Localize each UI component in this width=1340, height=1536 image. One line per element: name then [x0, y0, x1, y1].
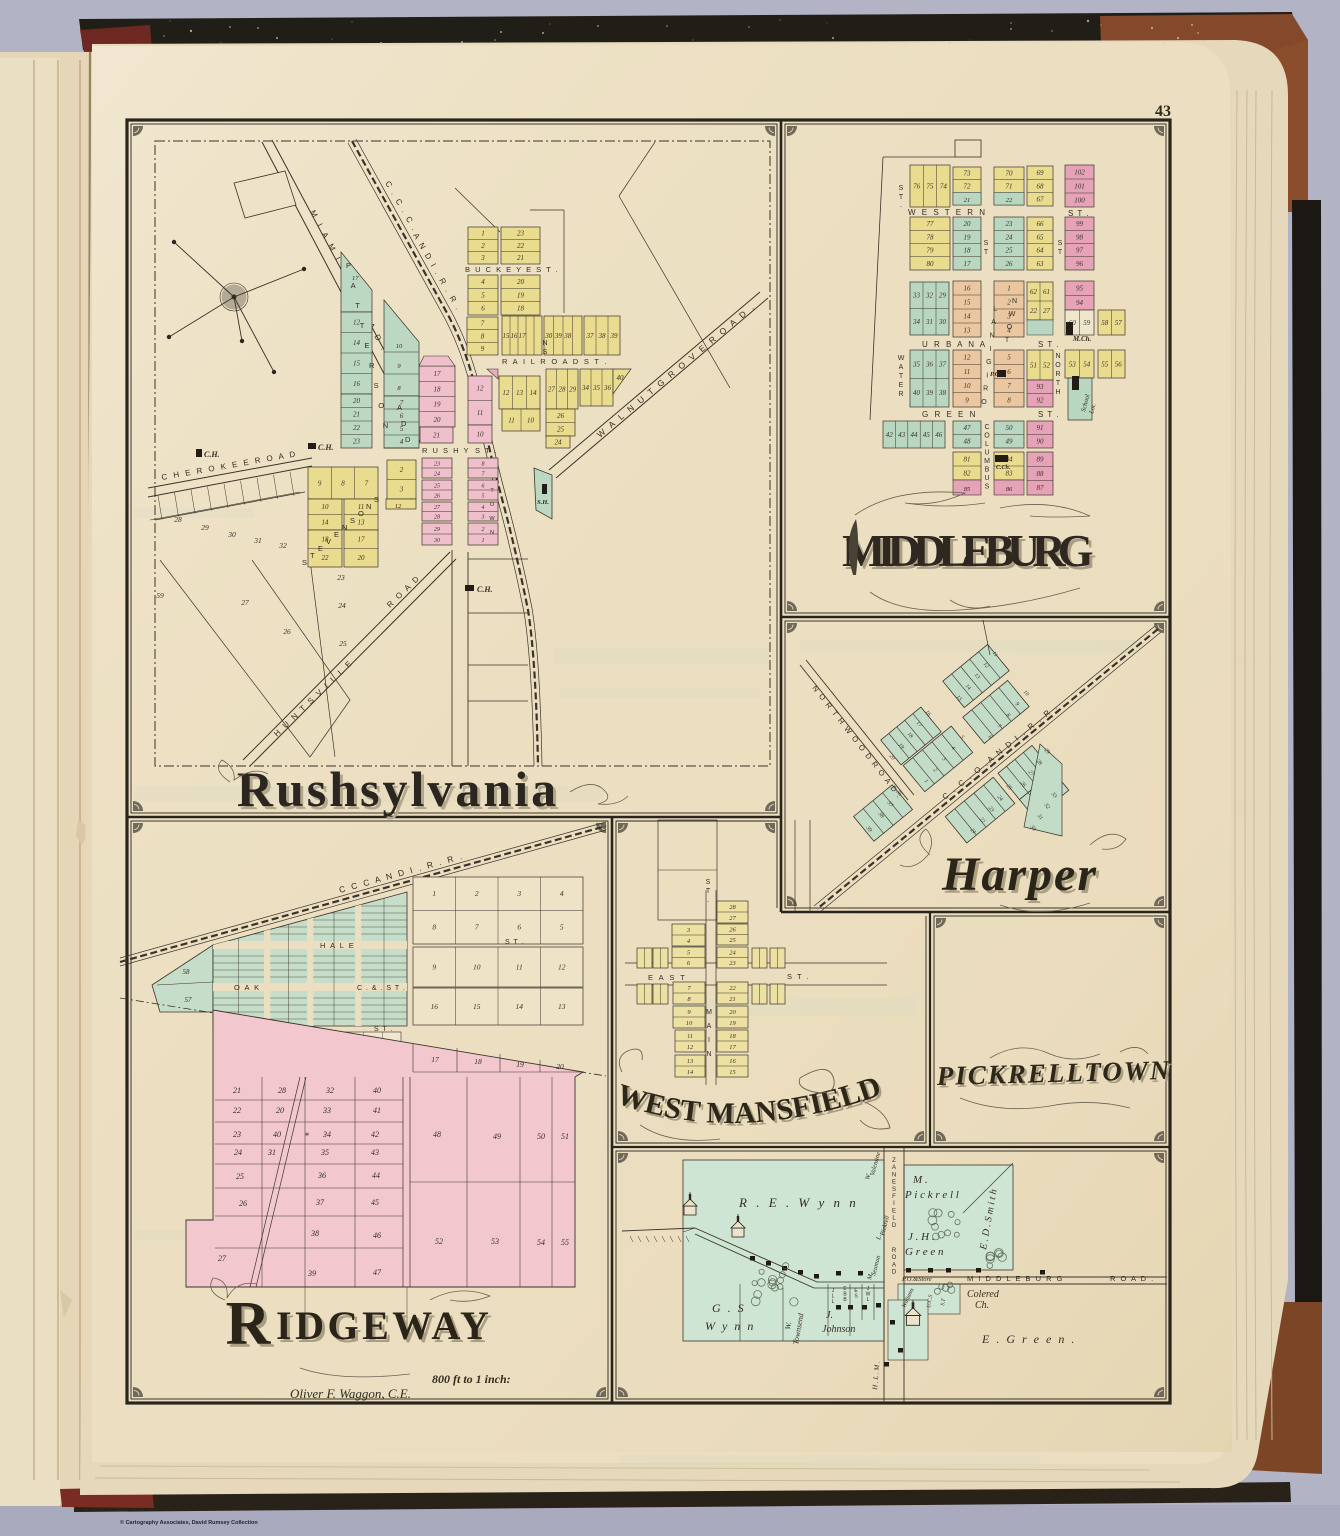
svg-text:82: 82 [964, 469, 972, 477]
svg-text:95: 95 [1076, 285, 1084, 293]
svg-text:4: 4 [560, 889, 564, 898]
svg-text:13: 13 [687, 1058, 694, 1065]
svg-text:26: 26 [557, 412, 565, 420]
svg-text:O: O [378, 401, 384, 410]
svg-text:W: W [489, 516, 495, 522]
svg-text:6: 6 [517, 923, 521, 932]
svg-text:O A K: O A K [234, 983, 261, 992]
svg-text:12: 12 [477, 385, 485, 393]
svg-text:19: 19 [516, 1060, 524, 1069]
svg-text:.: . [707, 896, 709, 904]
svg-text:89: 89 [1037, 456, 1045, 464]
svg-text:35: 35 [912, 361, 921, 369]
svg-text:T: T [1058, 249, 1063, 256]
svg-text:48: 48 [964, 438, 972, 446]
svg-text:12: 12 [964, 354, 972, 362]
svg-text:E: E [899, 382, 904, 389]
svg-text:19: 19 [434, 401, 442, 409]
svg-text:R: R [1055, 371, 1060, 378]
svg-text:11: 11 [687, 1033, 693, 1040]
svg-text:52: 52 [1043, 361, 1051, 369]
svg-text:76: 76 [913, 182, 921, 190]
svg-text:23: 23 [434, 461, 440, 467]
svg-text:38: 38 [938, 389, 947, 397]
svg-text:26: 26 [1006, 260, 1014, 268]
svg-text:A: A [892, 1165, 896, 1171]
svg-text:D: D [892, 1223, 897, 1229]
svg-text:S: S [350, 516, 355, 525]
svg-text:W: W [898, 355, 905, 362]
svg-text:25: 25 [1006, 247, 1014, 255]
svg-text:19: 19 [964, 233, 972, 241]
svg-text:42: 42 [371, 1130, 379, 1139]
svg-text:N: N [1012, 298, 1017, 305]
svg-text:9: 9 [481, 345, 485, 353]
svg-text:27: 27 [548, 385, 556, 393]
svg-text:81: 81 [964, 455, 971, 463]
svg-text:17: 17 [964, 260, 972, 268]
svg-text:W y n n: W y n n [705, 1319, 755, 1333]
svg-text:E: E [318, 544, 323, 553]
svg-text:87: 87 [1037, 484, 1045, 492]
svg-text:28: 28 [434, 515, 440, 521]
svg-text:M.Ch.: M.Ch. [1072, 335, 1092, 343]
svg-text:E A S T: E A S T [648, 973, 687, 982]
svg-text:1: 1 [1007, 284, 1011, 292]
svg-text:27: 27 [218, 1254, 227, 1263]
svg-text:R . E . W y n n: R . E . W y n n [738, 1195, 859, 1210]
svg-text:49: 49 [1006, 438, 1014, 446]
svg-text:A: A [397, 403, 402, 412]
svg-text:S: S [892, 1187, 896, 1193]
svg-text:50: 50 [537, 1132, 545, 1141]
svg-text:W E S T E R N: W E S T E R N [908, 208, 987, 217]
svg-text:9: 9 [318, 479, 322, 487]
svg-text:100: 100 [1074, 196, 1085, 204]
svg-text:C . & . S T .: C . & . S T . [357, 985, 406, 992]
svg-text:27: 27 [729, 915, 736, 922]
svg-text:21: 21 [433, 431, 440, 439]
svg-text:21: 21 [517, 254, 524, 262]
svg-text:26: 26 [283, 627, 291, 636]
svg-text:58: 58 [183, 968, 191, 976]
svg-text:N: N [542, 340, 547, 347]
svg-text:5: 5 [482, 493, 485, 499]
svg-text:1: 1 [482, 538, 485, 544]
svg-text:N: N [366, 502, 371, 511]
svg-text:800 ft to 1 inch:: 800 ft to 1 inch: [432, 1372, 511, 1386]
svg-text:16: 16 [729, 1058, 736, 1065]
svg-text:75: 75 [927, 182, 935, 190]
svg-text:42: 42 [886, 431, 894, 439]
svg-text:L: L [832, 1299, 835, 1305]
svg-text:39: 39 [307, 1269, 316, 1278]
svg-text:5: 5 [481, 291, 485, 299]
svg-text:63: 63 [1037, 260, 1045, 268]
svg-text:10: 10 [396, 343, 403, 350]
svg-text:32: 32 [925, 292, 934, 300]
svg-text:73: 73 [964, 170, 972, 178]
svg-text:45: 45 [371, 1198, 379, 1207]
svg-text:80: 80 [927, 260, 935, 268]
svg-text:70: 70 [1006, 170, 1014, 178]
svg-text:71: 71 [1006, 182, 1013, 190]
svg-text:88: 88 [1037, 470, 1045, 478]
svg-text:10: 10 [686, 1020, 693, 1027]
svg-text:25: 25 [434, 483, 440, 489]
svg-text:1: 1 [432, 889, 436, 898]
svg-text:90: 90 [1037, 438, 1045, 446]
svg-text:52: 52 [435, 1237, 443, 1246]
svg-text:E: E [892, 1208, 896, 1214]
svg-text:24: 24 [338, 601, 346, 610]
svg-text:48: 48 [433, 1130, 441, 1139]
svg-text:27: 27 [1043, 307, 1051, 315]
svg-text:6: 6 [1007, 368, 1011, 376]
svg-text:N: N [706, 1051, 711, 1058]
svg-text:28: 28 [559, 385, 567, 393]
svg-text:2: 2 [1007, 298, 1011, 306]
svg-text:20: 20 [353, 397, 361, 405]
svg-text:*: * [305, 1131, 310, 1141]
svg-text:A: A [899, 364, 904, 371]
svg-text:36: 36 [925, 361, 934, 369]
svg-text:11: 11 [964, 368, 970, 376]
svg-text:44: 44 [372, 1171, 380, 1180]
svg-text:S T .: S T . [505, 939, 525, 946]
svg-text:B: B [985, 467, 990, 474]
svg-text:40: 40 [617, 374, 625, 382]
svg-text:T: T [984, 249, 989, 256]
svg-text:16: 16 [431, 1002, 439, 1011]
svg-text:T: T [360, 321, 365, 330]
svg-text:4: 4 [400, 438, 404, 446]
svg-text:E: E [364, 341, 369, 350]
svg-text:6: 6 [482, 483, 485, 489]
svg-text:P i c k r e l l: P i c k r e l l [904, 1189, 959, 1201]
svg-text:53: 53 [1069, 360, 1077, 368]
svg-text:56: 56 [1115, 360, 1123, 368]
svg-text:T: T [706, 888, 711, 895]
svg-text:Harper: Harper [941, 848, 1098, 901]
svg-text:24: 24 [729, 950, 736, 957]
svg-text:34: 34 [322, 1130, 331, 1139]
svg-text:20: 20 [964, 220, 972, 228]
svg-text:S: S [302, 558, 307, 567]
svg-text:49: 49 [493, 1132, 501, 1141]
svg-text:7: 7 [1007, 382, 1011, 390]
svg-text:G r e e n: G r e e n [905, 1246, 944, 1258]
svg-text:74: 74 [940, 182, 948, 190]
svg-text:66: 66 [1037, 220, 1045, 228]
svg-text:D: D [405, 435, 411, 444]
svg-text:38: 38 [310, 1229, 319, 1238]
svg-text:34: 34 [912, 318, 921, 326]
svg-text:I: I [989, 346, 991, 353]
svg-text:40: 40 [913, 389, 921, 397]
svg-text:23: 23 [1006, 220, 1014, 228]
svg-text:19: 19 [517, 291, 525, 299]
svg-text:22: 22 [233, 1106, 241, 1115]
svg-text:53: 53 [491, 1237, 499, 1246]
svg-text:20: 20 [556, 1062, 564, 1071]
svg-text:E: E [892, 1180, 896, 1186]
svg-text:59: 59 [156, 591, 164, 600]
svg-text:40: 40 [373, 1086, 381, 1095]
svg-text:26: 26 [434, 493, 440, 499]
svg-text:I: I [708, 1037, 710, 1044]
svg-text:C.H.: C.H. [318, 443, 334, 452]
svg-text:101: 101 [1074, 182, 1085, 190]
svg-text:20: 20 [276, 1106, 284, 1115]
svg-text:34: 34 [581, 384, 590, 392]
svg-text:39: 39 [554, 332, 563, 340]
svg-text:L: L [985, 441, 989, 448]
svg-text:23: 23 [517, 230, 525, 238]
svg-text:15: 15 [729, 1069, 736, 1076]
svg-text:57: 57 [1115, 319, 1123, 327]
svg-text:O: O [984, 433, 990, 440]
svg-text:F: F [892, 1194, 896, 1200]
svg-text:45: 45 [923, 431, 931, 439]
svg-text:W: W [1009, 311, 1016, 318]
svg-text:92: 92 [1037, 397, 1045, 405]
svg-text:W.: W. [783, 1321, 793, 1330]
svg-text:69: 69 [1037, 169, 1045, 177]
svg-text:U R B A N A: U R B A N A [922, 340, 987, 349]
svg-text:43: 43 [1155, 103, 1171, 120]
svg-text:15: 15 [473, 1002, 481, 1011]
svg-text:A: A [892, 1262, 896, 1268]
svg-text:17: 17 [434, 370, 442, 378]
svg-text:40: 40 [273, 1130, 281, 1139]
svg-text:86: 86 [1006, 486, 1013, 493]
svg-text:14: 14 [353, 339, 361, 347]
svg-text:28: 28 [278, 1086, 286, 1095]
svg-text:I: I [986, 372, 988, 379]
svg-text:S: S [706, 879, 711, 886]
svg-text:C: C [984, 424, 989, 431]
svg-text:50: 50 [1006, 424, 1014, 432]
svg-text:G: G [986, 359, 991, 366]
svg-text:T: T [1005, 337, 1010, 344]
svg-text:18: 18 [434, 385, 442, 393]
svg-text:55: 55 [561, 1238, 569, 1247]
svg-text:36: 36 [317, 1171, 326, 1180]
svg-text:77: 77 [927, 220, 935, 228]
svg-text:39: 39 [610, 332, 619, 340]
svg-text:43: 43 [898, 431, 906, 439]
svg-text:13: 13 [558, 1002, 566, 1011]
svg-text:Colered: Colered [967, 1289, 1000, 1300]
svg-text:S: S [543, 349, 548, 356]
svg-text:3: 3 [399, 486, 404, 494]
svg-text:47: 47 [373, 1268, 382, 1277]
svg-text:4: 4 [481, 278, 485, 286]
svg-text:36: 36 [603, 384, 612, 392]
svg-text:21: 21 [353, 411, 360, 419]
svg-text:M: M [706, 1009, 712, 1016]
svg-text:N: N [490, 530, 494, 536]
svg-text:E . G r e e n .: E . G r e e n . [981, 1332, 1076, 1346]
svg-text:J . H .: J . H . [908, 1231, 935, 1243]
svg-text:96: 96 [1076, 260, 1084, 268]
svg-text:10: 10 [477, 430, 485, 438]
svg-text:M .: M . [912, 1174, 928, 1186]
svg-text:G R E E N: G R E E N [922, 410, 977, 419]
svg-text:A: A [351, 281, 356, 290]
svg-text:D: D [892, 1270, 897, 1276]
svg-text:62: 62 [1030, 288, 1038, 296]
svg-text:S T .: S T . [1038, 340, 1060, 349]
svg-text:18: 18 [517, 305, 525, 313]
svg-text:59: 59 [1083, 319, 1091, 327]
svg-text:51: 51 [1030, 361, 1037, 369]
svg-text:32: 32 [325, 1086, 334, 1095]
svg-text:A: A [991, 319, 996, 326]
svg-text:24: 24 [555, 438, 563, 446]
svg-text:E: E [334, 530, 339, 539]
svg-text:22: 22 [1030, 307, 1038, 315]
svg-text:28: 28 [729, 904, 736, 911]
svg-text:94: 94 [1076, 299, 1084, 307]
svg-text:S T .: S T . [787, 972, 810, 981]
svg-text:20: 20 [358, 554, 366, 562]
svg-text:12: 12 [502, 389, 510, 397]
svg-text:4: 4 [482, 504, 485, 511]
svg-text:85: 85 [964, 486, 971, 493]
svg-text:D: D [401, 419, 407, 428]
svg-text:S: S [374, 381, 379, 390]
svg-text:2: 2 [475, 889, 479, 898]
svg-text:15: 15 [353, 360, 361, 368]
svg-text:22: 22 [353, 424, 361, 432]
svg-text:B U C K E Y E S T .: B U C K E Y E S T . [465, 265, 559, 274]
svg-text:L: L [867, 1297, 870, 1303]
svg-text:31: 31 [253, 536, 262, 545]
svg-text:PICKRELLTOWN: PICKRELLTOWN [935, 1055, 1171, 1091]
svg-text:H A L E: H A L E [320, 941, 355, 950]
svg-text:1: 1 [481, 230, 485, 238]
svg-text:25: 25 [339, 639, 347, 648]
svg-text:C.H.: C.H. [204, 450, 220, 459]
svg-text:10: 10 [322, 503, 330, 511]
svg-text:C.H.: C.H. [477, 585, 493, 594]
svg-text:7: 7 [475, 923, 479, 932]
svg-text:30: 30 [227, 530, 236, 539]
svg-text:Ch.: Ch. [975, 1300, 989, 1311]
svg-text:25: 25 [729, 937, 736, 944]
svg-text:14: 14 [530, 389, 538, 397]
svg-text:26: 26 [729, 927, 736, 934]
svg-text:38: 38 [563, 332, 572, 340]
svg-text:30: 30 [544, 332, 553, 340]
svg-text:M: M [984, 458, 990, 465]
svg-text:37: 37 [586, 332, 595, 340]
svg-text:T: T [899, 373, 904, 380]
svg-text:16: 16 [353, 380, 361, 388]
svg-text:31: 31 [267, 1148, 276, 1157]
svg-text:22: 22 [729, 985, 736, 992]
svg-text:R U S H Y: R U S H Y [422, 446, 470, 455]
svg-text:8: 8 [482, 461, 485, 467]
svg-text:H: H [1055, 389, 1060, 396]
svg-text:R: R [369, 361, 375, 370]
svg-text:17: 17 [358, 536, 366, 544]
svg-text:S: S [985, 484, 990, 491]
svg-text:R O A D .: R O A D . [1110, 1274, 1155, 1283]
svg-text:14: 14 [964, 312, 972, 320]
svg-text:37: 37 [938, 361, 947, 369]
svg-text:46: 46 [935, 431, 943, 439]
svg-text:T: T [1056, 380, 1061, 387]
svg-text:10: 10 [527, 416, 535, 424]
svg-text:Rushsylvania: Rushsylvania [237, 761, 559, 817]
svg-text:30: 30 [433, 538, 440, 544]
svg-text:39: 39 [925, 389, 934, 397]
svg-text:29: 29 [434, 527, 440, 533]
svg-text:21: 21 [233, 1086, 241, 1095]
svg-text:A: A [707, 1023, 712, 1030]
svg-text:16: 16 [511, 332, 519, 340]
svg-text:72: 72 [964, 182, 972, 190]
svg-text:31: 31 [925, 318, 933, 326]
svg-text:24: 24 [1006, 233, 1014, 241]
svg-text:99: 99 [1076, 220, 1084, 228]
svg-text:29: 29 [201, 523, 209, 532]
svg-text:O: O [981, 399, 987, 406]
svg-text:9: 9 [432, 962, 436, 971]
svg-text:P.O.: P.O. [990, 371, 1001, 378]
svg-text:T: T [355, 301, 360, 310]
svg-text:19: 19 [729, 1020, 736, 1027]
svg-text:MIDDLEBURG: MIDDLEBURG [842, 525, 1094, 576]
svg-text:20: 20 [434, 416, 442, 424]
svg-text:11: 11 [477, 409, 483, 417]
svg-text:14: 14 [516, 1002, 524, 1011]
svg-text:61: 61 [1043, 288, 1050, 296]
svg-text:14: 14 [322, 519, 330, 527]
svg-text:R: R [898, 391, 903, 398]
svg-text:N: N [342, 523, 347, 532]
svg-text:9: 9 [965, 396, 969, 404]
svg-text:24: 24 [234, 1148, 242, 1157]
svg-text:27: 27 [241, 598, 249, 607]
svg-text:29: 29 [939, 292, 947, 300]
svg-text:32: 32 [278, 541, 287, 550]
svg-text:33: 33 [912, 292, 921, 300]
svg-text:S: S [374, 495, 379, 504]
svg-text:U: U [984, 475, 989, 482]
svg-text:64: 64 [1037, 247, 1045, 255]
svg-text:.: . [900, 201, 902, 209]
svg-text:12: 12 [687, 1044, 694, 1051]
svg-text:S: S [1058, 240, 1063, 247]
svg-text:67: 67 [1037, 196, 1045, 204]
svg-text:91: 91 [1037, 424, 1044, 432]
svg-text:11: 11 [516, 962, 523, 971]
svg-text:58: 58 [1101, 319, 1109, 327]
svg-text:15: 15 [964, 298, 972, 306]
svg-text:8: 8 [432, 923, 436, 932]
svg-text:24: 24 [434, 470, 440, 477]
svg-text:5: 5 [1007, 354, 1011, 362]
svg-text:93: 93 [1037, 383, 1045, 391]
svg-text:13: 13 [964, 326, 972, 334]
svg-text:N: N [383, 421, 388, 430]
svg-text:M I D D L E B U R G: M I D D L E B U R G [967, 1274, 1064, 1283]
svg-text:18: 18 [474, 1057, 482, 1066]
